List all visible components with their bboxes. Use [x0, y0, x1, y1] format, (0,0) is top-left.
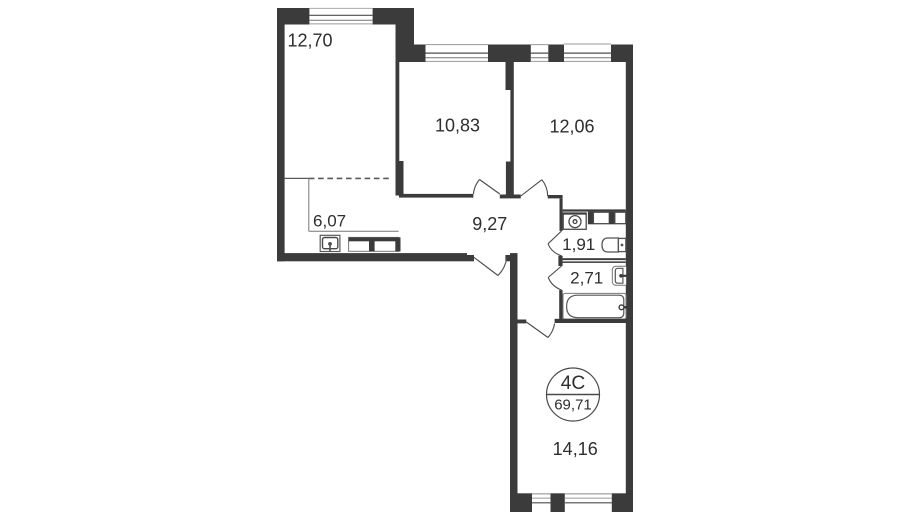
svg-text:6,07: 6,07 — [313, 211, 346, 230]
svg-text:10,83: 10,83 — [435, 116, 480, 136]
svg-text:2,71: 2,71 — [570, 269, 603, 288]
svg-text:4C: 4C — [561, 373, 586, 394]
svg-text:1,91: 1,91 — [562, 235, 595, 254]
svg-text:12,70: 12,70 — [287, 31, 332, 51]
svg-text:9,27: 9,27 — [472, 214, 507, 234]
svg-text:12,06: 12,06 — [549, 117, 594, 137]
svg-text:69,71: 69,71 — [554, 397, 592, 414]
svg-text:14,16: 14,16 — [553, 439, 598, 459]
